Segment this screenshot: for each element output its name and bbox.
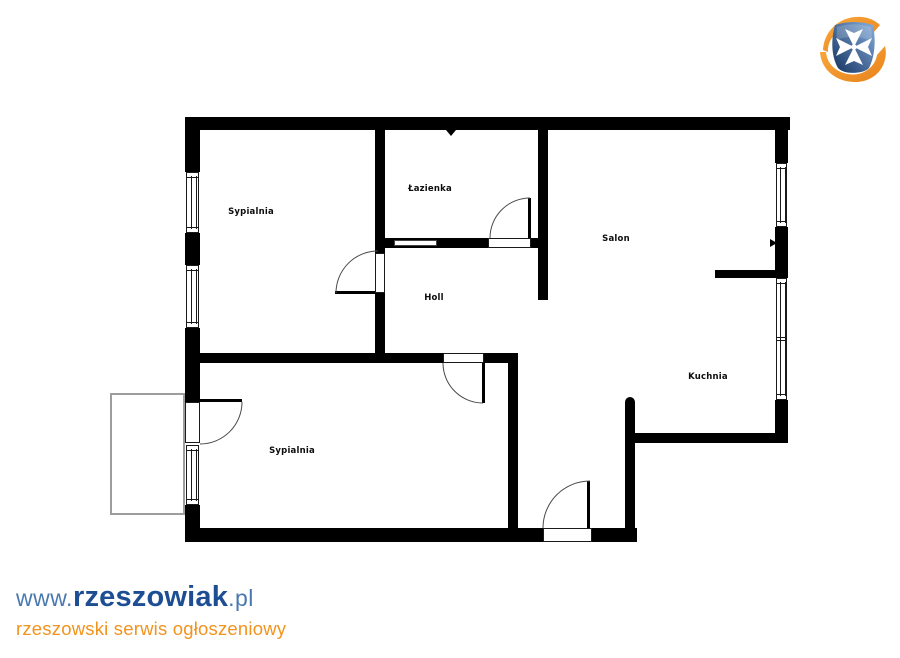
wall-exterior-top <box>185 117 790 130</box>
door-leaf-bedroom2 <box>482 363 485 403</box>
wall-exterior-left-seg2 <box>185 233 200 265</box>
apartment-floorplan: Sypialnia Łazienka Holl Salon Kuchnia Sy… <box>0 0 900 658</box>
wall-livingroom-kitchen-stub <box>715 270 788 278</box>
wall-junction-marker-right <box>770 239 777 247</box>
door-arc-entrance <box>543 481 590 528</box>
wall-bedroom2-right <box>508 353 518 542</box>
window-bedroom2 <box>186 445 199 505</box>
window-kitchen <box>776 278 787 400</box>
door-opening-entrance <box>543 528 592 542</box>
wall-bathroom-livingroom <box>538 117 548 300</box>
wall-exterior-right-seg1 <box>775 117 788 163</box>
watermark-tld: .pl <box>228 585 254 611</box>
door-leaf-entrance <box>587 481 590 528</box>
room-label-lazienka: Łazienka <box>408 184 452 194</box>
door-leaf-bathroom <box>528 198 531 238</box>
door-opening-balcony <box>185 402 200 443</box>
door-arc-bedroom2 <box>443 363 483 403</box>
wall-junction-marker-top <box>446 130 456 136</box>
wall-corridor-kitchen <box>625 397 635 542</box>
watermark-url: www.rzeszowiak.pl <box>16 582 286 617</box>
door-arc-bathroom <box>490 198 530 238</box>
door-leaf-bedroom1 <box>335 291 375 294</box>
wall-niche-bathroom <box>394 240 437 246</box>
room-label-holl: Holl <box>424 293 444 303</box>
window-livingroom <box>776 163 787 227</box>
door-opening-bedroom1 <box>375 253 385 293</box>
wall-exterior-left-seg1 <box>185 117 200 172</box>
watermark-name: rzeszowiak <box>73 581 228 613</box>
floorplan-canvas: Sypialnia Łazienka Holl Salon Kuchnia Sy… <box>0 0 900 658</box>
window-bedroom1-lower <box>186 265 199 328</box>
watermark-tagline: rzeszowski serwis ogłoszeniowy <box>16 618 286 640</box>
wall-kitchen-bottom <box>625 433 788 443</box>
door-opening-bathroom <box>488 238 531 248</box>
wall-exterior-left-seg3 <box>185 328 200 402</box>
door-arc-bedroom1 <box>336 251 378 293</box>
rzeszowiak-logo-icon <box>816 8 888 84</box>
room-label-sypialnia-1: Sypialnia <box>228 207 274 217</box>
room-label-sypialnia-2: Sypialnia <box>269 446 315 456</box>
room-label-kuchnia: Kuchnia <box>688 372 728 382</box>
door-swing-arcs <box>0 0 900 658</box>
balcony-outline <box>110 393 185 515</box>
door-arc-balcony <box>200 402 242 444</box>
window-bedroom1-upper <box>186 172 199 233</box>
door-leaf-balcony <box>200 399 242 402</box>
site-watermark: www.rzeszowiak.pl rzeszowski serwis ogło… <box>16 582 286 640</box>
watermark-www: www. <box>16 585 73 611</box>
room-label-salon: Salon <box>602 234 630 244</box>
door-opening-bedroom2 <box>443 353 484 363</box>
